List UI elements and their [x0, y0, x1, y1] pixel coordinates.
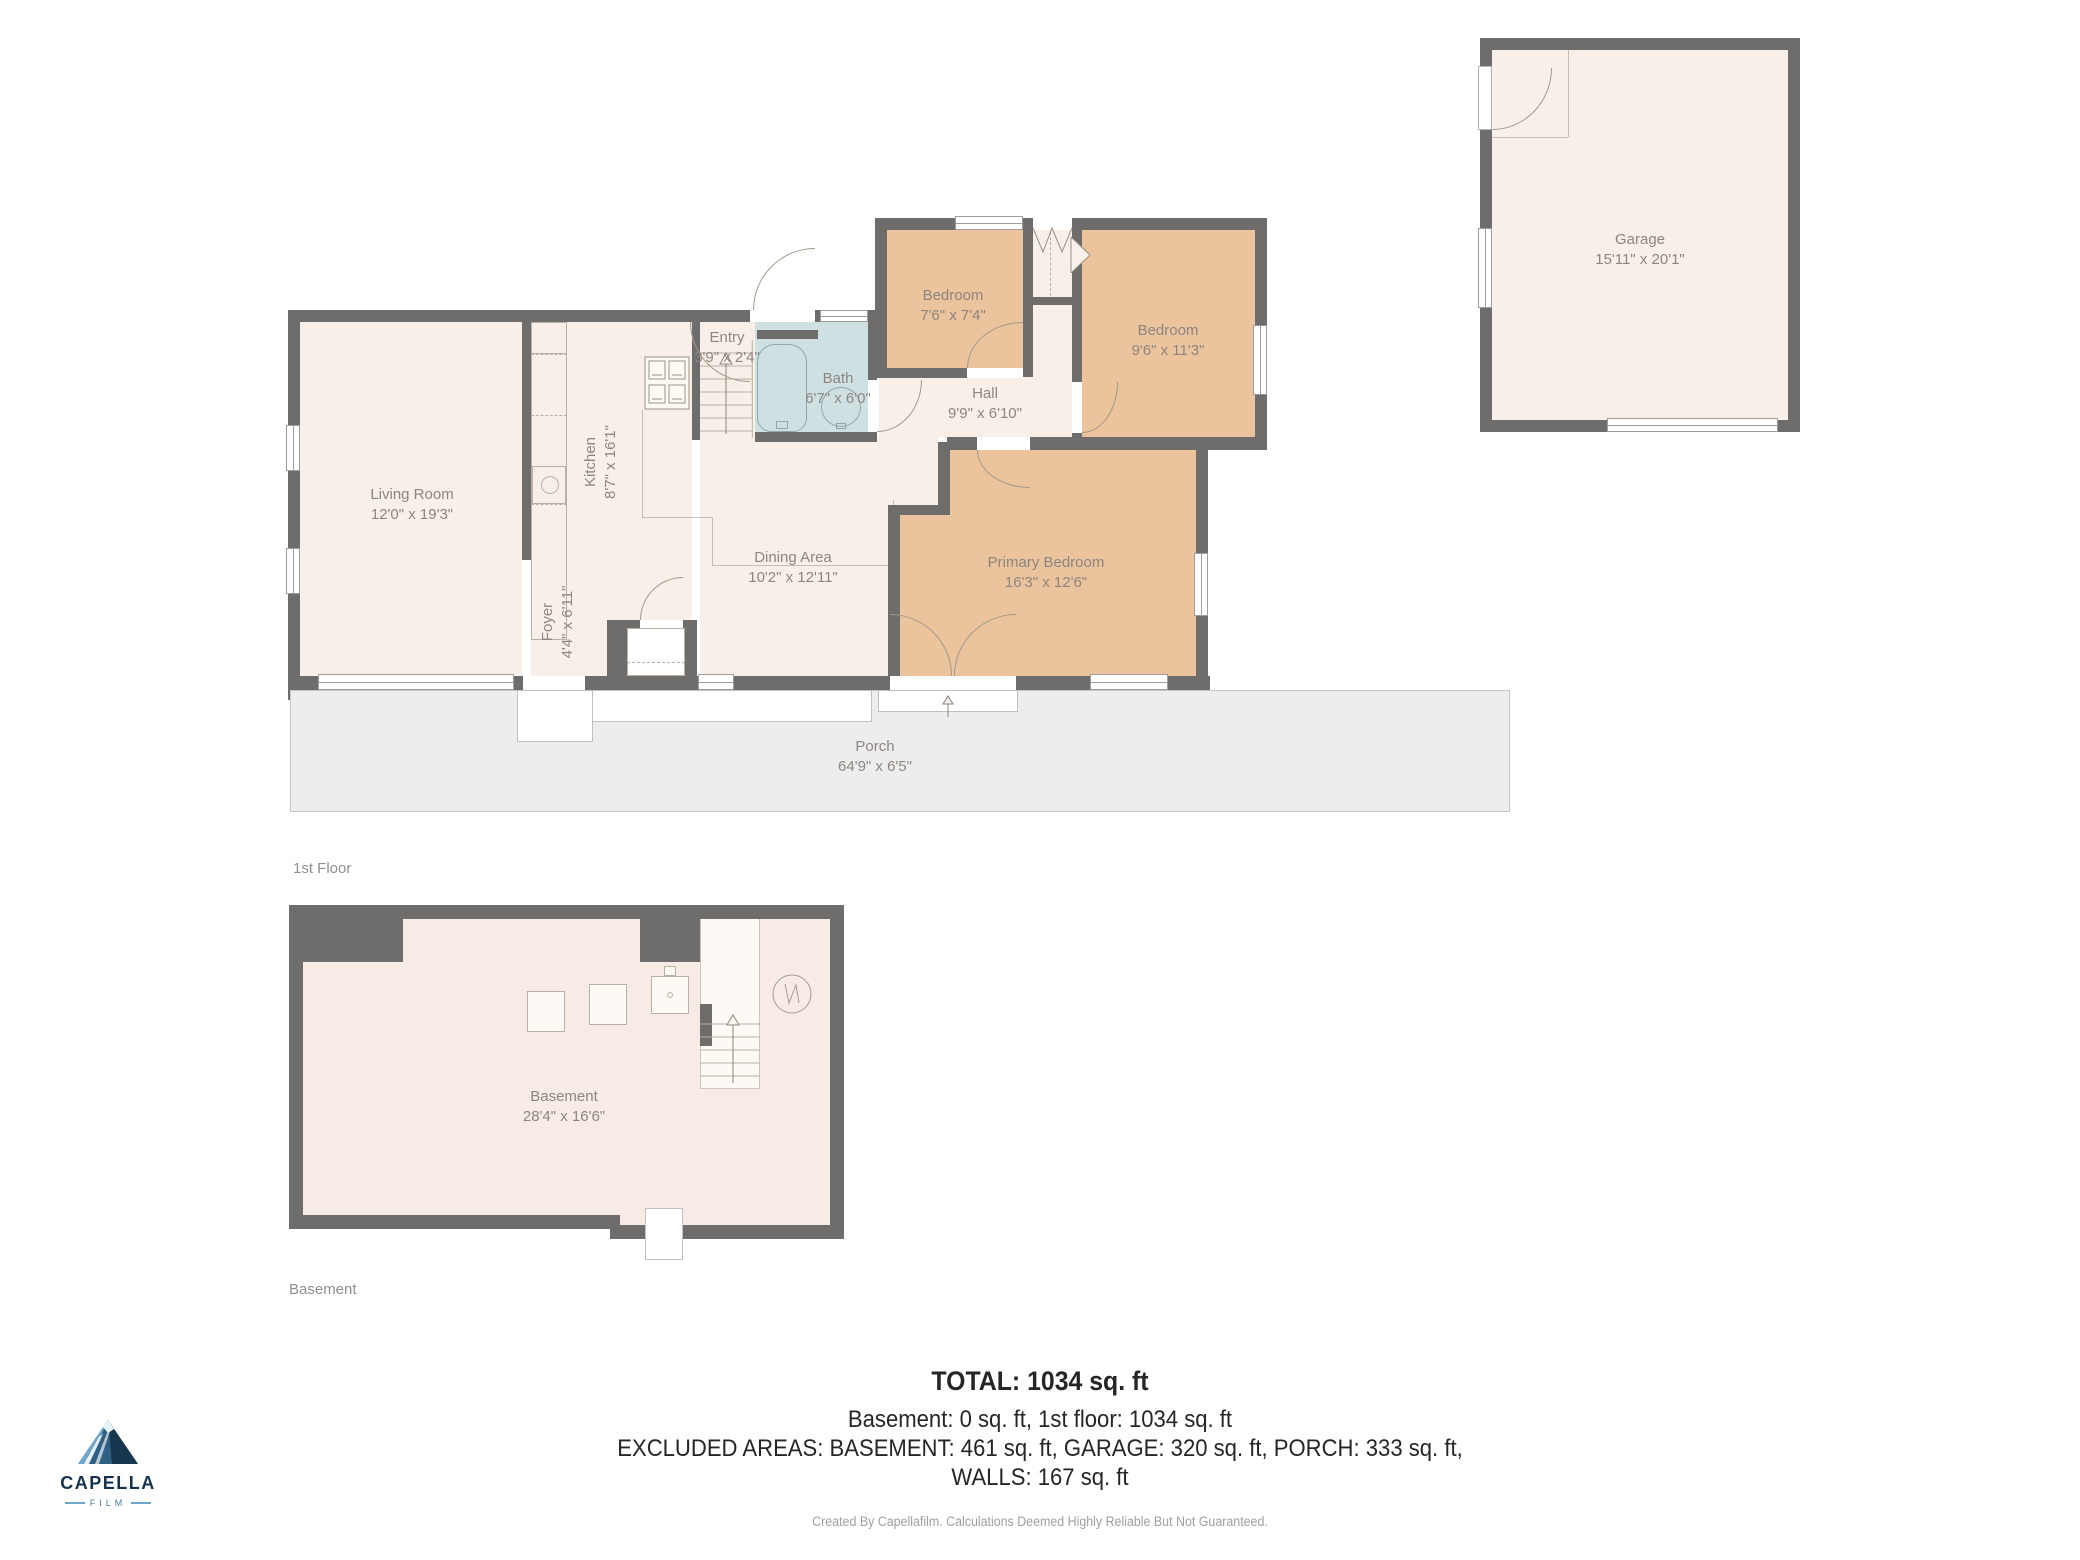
- room-name: Primary Bedroom: [988, 553, 1105, 573]
- window: [286, 548, 300, 594]
- room-name: Bath: [805, 369, 871, 389]
- mountain-logo-icon: [76, 1418, 140, 1466]
- door-opening-bedroom-mid: [1072, 382, 1082, 433]
- room-dims: 4'4" x 6'11": [558, 586, 578, 659]
- kitchen-sink-basin: [541, 476, 559, 494]
- foyer-closet-dashed: [627, 662, 685, 663]
- door-opening-foyer-closet: [640, 620, 683, 628]
- laundry-drain: [667, 992, 673, 998]
- room-label-bedroom-small: Bedroom 7'6" x 7'4": [920, 286, 986, 326]
- window: [286, 425, 300, 471]
- summary-total: TOTAL: 1034 sq. ft: [580, 1366, 1500, 1397]
- room-dims: 7'6" x 7'4": [920, 306, 986, 326]
- floor-transition-line: [712, 517, 713, 565]
- room-label-bath: Bath 6'7" x 6'0": [805, 369, 871, 409]
- water-heater-icon: [771, 973, 813, 1015]
- room-name: Living Room: [370, 485, 453, 505]
- room-label-living-room: Living Room 12'0" x 19'3": [370, 485, 453, 525]
- bifold-door-icon: [1033, 226, 1072, 254]
- room-label-basement: Basement 28'4" x 16'6": [523, 1087, 605, 1127]
- porch-stoop-foyer: [517, 690, 593, 742]
- window: [1253, 325, 1267, 395]
- room-dims: 9'6" x 11'3": [1132, 341, 1205, 361]
- room-label-foyer: Foyer 4'4" x 6'11": [538, 586, 578, 659]
- wall-segment: [830, 905, 844, 1239]
- entrance-arrow-icon: [941, 692, 955, 718]
- window: [955, 216, 1023, 230]
- basement-stairs-icon: [700, 919, 760, 1089]
- room-label-porch: Porch 64'9" x 6'5": [838, 737, 912, 777]
- room-dims: 64'9" x 6'5": [838, 757, 912, 777]
- room-name: Porch: [838, 737, 912, 757]
- room-label-bedroom-mid: Bedroom 9'6" x 11'3": [1132, 321, 1205, 361]
- room-name: Basement: [523, 1087, 605, 1107]
- floor-transition-line: [642, 517, 713, 518]
- door-opening-primary: [977, 437, 1030, 450]
- wall-segment: [1030, 437, 1267, 450]
- wall-segment: [1480, 38, 1800, 50]
- door-opening-entry: [750, 310, 815, 322]
- garage-corner-line: [1568, 50, 1569, 137]
- logo-rule-left: [65, 1502, 85, 1504]
- appliance-box: [589, 984, 627, 1025]
- door-opening-foyer: [523, 676, 585, 690]
- window: [1607, 418, 1778, 432]
- room-dims: 12'0" x 19'3": [370, 505, 453, 525]
- door-opening-bedroom-small: [967, 368, 1023, 378]
- window: [1090, 674, 1168, 690]
- window: [820, 310, 868, 322]
- wall-segment: [755, 432, 877, 442]
- wall-block: [640, 919, 700, 962]
- room-dims: 15'11" x 20'1": [1595, 250, 1685, 270]
- stove-icon: [644, 356, 690, 410]
- foyer-closet-shelf: [627, 628, 685, 676]
- wall-segment: [1788, 38, 1800, 432]
- hall-notch-floor: [877, 437, 938, 507]
- summary-floors: Basement: 0 sq. ft, 1st floor: 1034 sq. …: [580, 1405, 1500, 1434]
- logo-subtitle-text: FILM: [90, 1498, 127, 1508]
- room-label-garage: Garage 15'11" x 20'1": [1595, 230, 1685, 270]
- tub-faucet: [776, 421, 788, 429]
- wall-segment: [522, 322, 531, 560]
- porch-step-band: [592, 690, 872, 722]
- room-dims: 28'4" x 16'6": [523, 1107, 605, 1127]
- garage-door-leaf: [1478, 66, 1492, 130]
- wall-segment: [877, 368, 967, 378]
- dishwasher-icon: [531, 354, 567, 416]
- area-summary: TOTAL: 1034 sq. ft Basement: 0 sq. ft, 1…: [580, 1366, 1500, 1529]
- capella-film-logo: CAPELLA FILM: [55, 1418, 161, 1508]
- room-dims: 3'9" x 2'4": [694, 348, 760, 368]
- wall-segment: [289, 905, 844, 919]
- room-dims: 10'2" x 12'11": [748, 568, 838, 588]
- logo-brand-text: CAPELLA: [55, 1473, 161, 1494]
- laundry-faucet: [664, 966, 676, 976]
- summary-walls: WALLS: 167 sq. ft: [580, 1463, 1500, 1492]
- logo-subtitle-row: FILM: [55, 1498, 161, 1508]
- basement-hatch: [645, 1208, 683, 1260]
- room-label-dining-area: Dining Area 10'2" x 12'11": [748, 548, 838, 588]
- wall-segment: [288, 310, 750, 322]
- wall-segment: [938, 442, 950, 512]
- room-name: Bedroom: [920, 286, 986, 306]
- room-name: Entry: [694, 328, 760, 348]
- wall-segment: [289, 1215, 620, 1229]
- closet-door-wedge: [1070, 237, 1092, 273]
- room-name: Dining Area: [748, 548, 838, 568]
- caption-first-floor: 1st Floor: [293, 860, 351, 877]
- wall-segment: [947, 437, 977, 450]
- summary-disclaimer: Created By Capellafilm. Calculations Dee…: [580, 1514, 1500, 1529]
- room-name: Kitchen: [581, 425, 601, 499]
- room-label-hall: Hall 9'9" x 6'10": [948, 384, 1022, 424]
- window: [1478, 228, 1492, 308]
- refrigerator-icon: [531, 322, 567, 354]
- window: [1194, 553, 1208, 616]
- room-dims: 16'3" x 12'6": [988, 573, 1105, 593]
- room-name: Hall: [948, 384, 1022, 404]
- room-label-entry: Entry 3'9" x 2'4": [694, 328, 760, 368]
- wall-segment: [757, 330, 818, 339]
- room-dims: 8'7" x 16'1": [601, 425, 621, 499]
- room-label-primary-bedroom: Primary Bedroom 16'3" x 12'6": [988, 553, 1105, 593]
- wall-segment: [289, 905, 303, 1229]
- room-name: Foyer: [538, 586, 558, 659]
- toilet-tank: [836, 423, 846, 429]
- room-name: Garage: [1595, 230, 1685, 250]
- logo-rule-right: [131, 1502, 151, 1504]
- room-name: Bedroom: [1132, 321, 1205, 341]
- window: [318, 674, 514, 690]
- window: [698, 674, 734, 690]
- appliance-box: [527, 991, 565, 1032]
- room-dims: 6'7" x 6'0": [805, 389, 871, 409]
- door-swing-arc: [753, 248, 815, 310]
- wall-segment: [1033, 297, 1072, 305]
- summary-excluded: EXCLUDED AREAS: BASEMENT: 461 sq. ft, GA…: [580, 1434, 1500, 1463]
- floorplan-page: Living Room 12'0" x 19'3" Kitchen 8'7" x…: [0, 0, 2080, 1560]
- bathtub-icon: [757, 344, 807, 432]
- room-label-kitchen: Kitchen 8'7" x 16'1": [581, 425, 621, 499]
- floor-transition-line: [642, 410, 643, 517]
- wall-block: [303, 919, 403, 962]
- garage-corner-line: [1492, 137, 1568, 138]
- wall-segment: [288, 310, 300, 700]
- door-opening-french: [890, 676, 1016, 690]
- room-dims: 9'9" x 6'10": [948, 404, 1022, 424]
- wall-segment: [1023, 230, 1033, 377]
- caption-basement: Basement: [289, 1281, 357, 1298]
